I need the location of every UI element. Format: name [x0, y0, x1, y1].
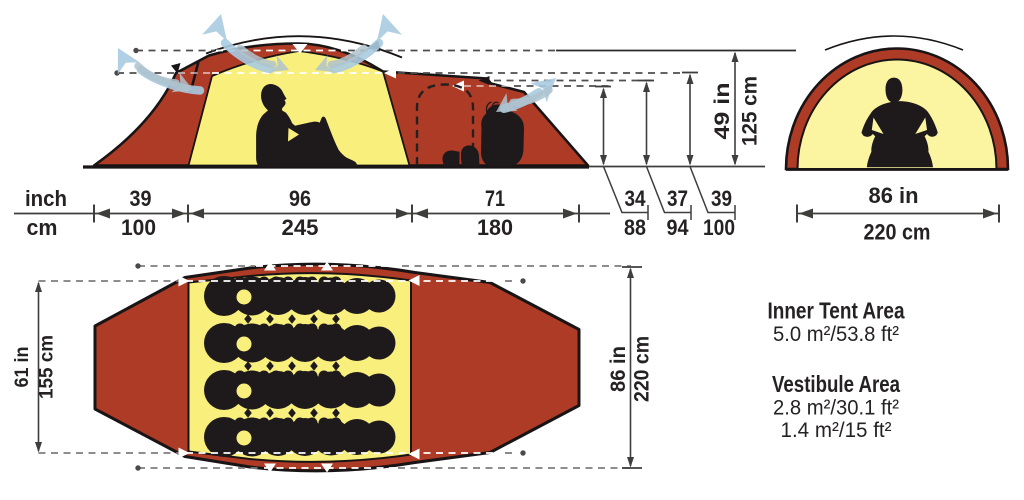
- svg-text:125 cm: 125 cm: [739, 76, 762, 146]
- svg-text:245: 245: [282, 215, 319, 240]
- svg-text:100: 100: [121, 215, 156, 240]
- svg-text:34: 34: [625, 186, 647, 211]
- svg-text:88: 88: [624, 215, 646, 240]
- svg-text:86 in: 86 in: [606, 346, 630, 392]
- svg-text:5.0 m²/53.8 ft²: 5.0 m²/53.8 ft²: [773, 323, 899, 346]
- svg-text:94: 94: [667, 215, 690, 240]
- svg-text:inch: inch: [25, 186, 67, 211]
- svg-text:Inner Tent Area: Inner Tent Area: [768, 298, 905, 324]
- svg-text:86 in: 86 in: [869, 183, 919, 208]
- svg-text:39: 39: [130, 186, 152, 211]
- svg-text:cm: cm: [27, 215, 58, 240]
- svg-text:61 in: 61 in: [11, 347, 33, 388]
- svg-text:Vestibule Area: Vestibule Area: [772, 371, 900, 397]
- svg-text:180: 180: [477, 215, 513, 240]
- svg-text:96: 96: [289, 186, 311, 211]
- svg-text:220 cm: 220 cm: [630, 336, 654, 402]
- svg-text:1.4 m²/15 ft²: 1.4 m²/15 ft²: [781, 419, 892, 442]
- svg-text:71: 71: [485, 186, 505, 211]
- svg-text:155 cm: 155 cm: [36, 335, 58, 399]
- svg-text:49 in: 49 in: [711, 83, 734, 140]
- svg-text:220 cm: 220 cm: [864, 220, 931, 245]
- svg-text:37: 37: [667, 186, 688, 211]
- svg-text:39: 39: [711, 186, 732, 211]
- svg-text:100: 100: [703, 215, 735, 240]
- svg-text:2.8 m²/30.1 ft²: 2.8 m²/30.1 ft²: [773, 397, 899, 420]
